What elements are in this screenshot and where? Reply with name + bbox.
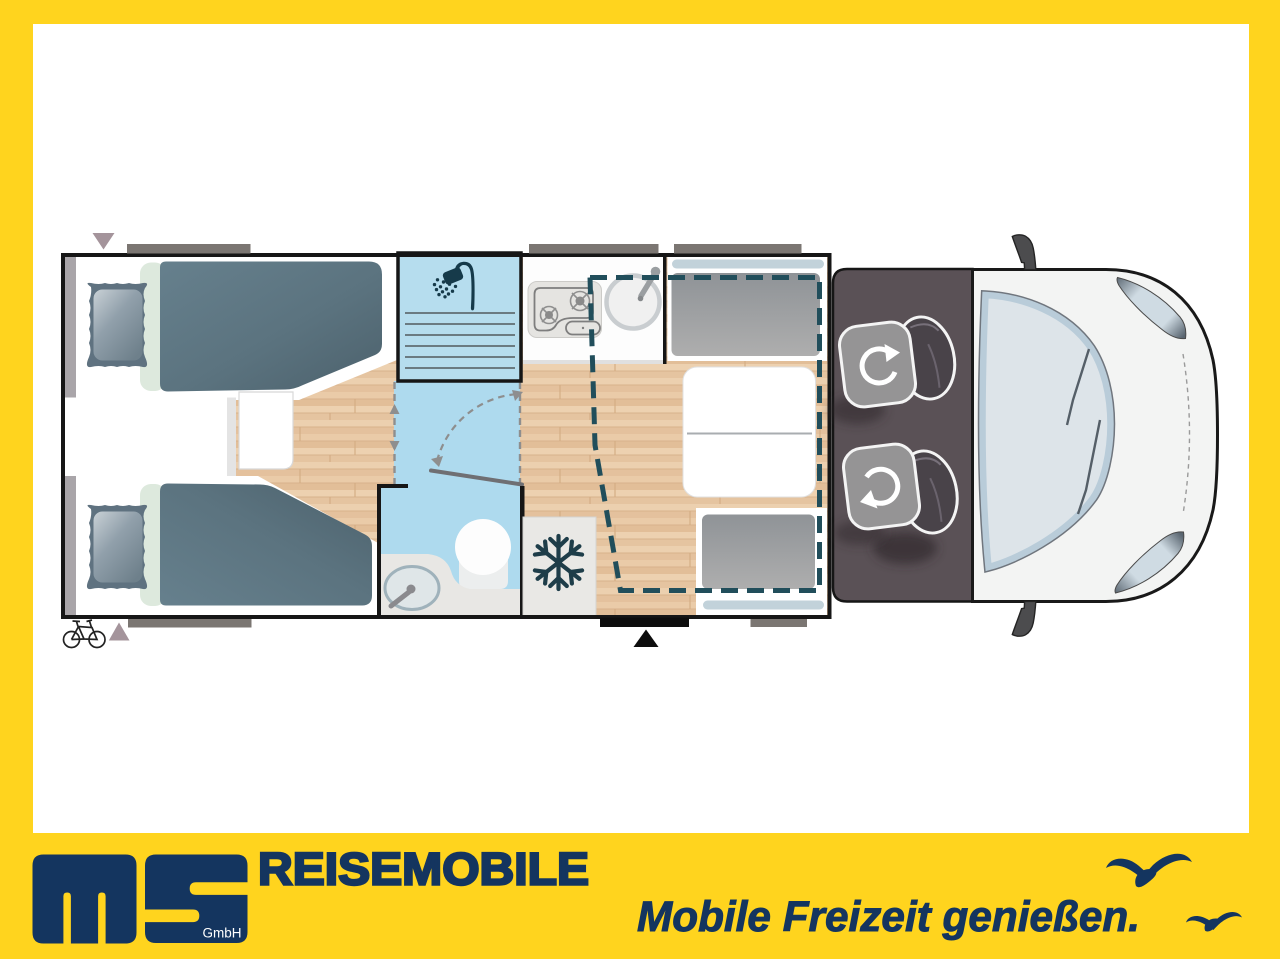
svg-text:Mobile Freizeit genießen.: Mobile Freizeit genießen. bbox=[637, 893, 1140, 941]
svg-text:REISEMOBILE: REISEMOBILE bbox=[258, 844, 589, 895]
svg-text:GmbH: GmbH bbox=[202, 926, 241, 941]
